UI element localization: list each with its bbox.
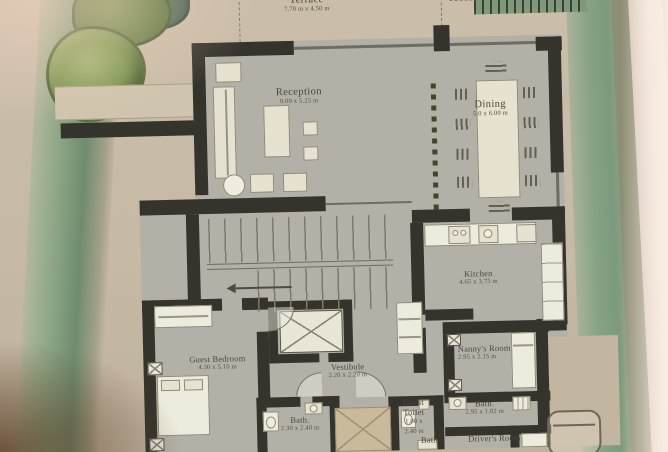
nightstand-icon xyxy=(147,362,162,375)
garden-step-strip xyxy=(55,83,196,120)
room-label-reception: Reception 9.00 x 5.25 m xyxy=(276,86,323,105)
pillow xyxy=(161,380,180,391)
shower-tray xyxy=(512,396,530,410)
wall xyxy=(61,120,196,138)
cooktop xyxy=(448,226,470,245)
kitchen-side-counter xyxy=(541,242,565,321)
pillow xyxy=(184,379,203,390)
nightstand-icon xyxy=(149,438,164,451)
side-table xyxy=(215,62,241,83)
room-label-terrace: Terrace 7.70 m x 4.50 m xyxy=(284,0,330,13)
stairs-arrow-head-icon xyxy=(227,283,236,293)
stairs-lower-flight xyxy=(257,266,394,311)
room-label-small-bath: Bath xyxy=(421,434,438,444)
entry-mat-icon xyxy=(335,407,392,452)
fridge xyxy=(516,224,536,242)
armchair xyxy=(283,173,307,193)
dining-chair xyxy=(485,62,506,73)
nanny-bed xyxy=(511,332,536,389)
terrace-dashed-edge-left xyxy=(239,2,241,42)
room-label-guest-bath: Bath. 2.30 x 2.40 m xyxy=(280,414,319,432)
dining-chair xyxy=(523,87,538,98)
nightstand-icon xyxy=(448,379,462,391)
room-label-guest-toilet: Guest Toilet 1.00 x 2.40 m xyxy=(403,397,425,437)
room-label-nanny-bath: Bath. 2.95 x 1.02 m xyxy=(465,398,504,416)
wall xyxy=(433,25,450,51)
dining-chair xyxy=(456,119,471,130)
dining-chair xyxy=(457,177,472,188)
accent-table xyxy=(303,146,318,160)
room-label-dining: Dining 5.0 x 6.00 m xyxy=(473,99,509,118)
hall-cabinet xyxy=(396,302,423,355)
wall xyxy=(512,206,565,220)
elevator-wall xyxy=(269,353,319,363)
dining-chair xyxy=(455,89,470,100)
armchair xyxy=(250,173,274,193)
room-label-drivers-room: Driver's Room xyxy=(468,432,521,443)
floor-plan-drawing: Terrace 7.70 m x 4.50 m Reception 9.00 x… xyxy=(0,0,668,452)
drivers-bed xyxy=(521,433,547,448)
room-label-nannys-room: Nanny's Room 2.95 x 2.15 m xyxy=(458,343,511,361)
wall xyxy=(425,309,473,321)
wall xyxy=(192,41,294,57)
terrace-dashed-edge-top xyxy=(450,0,562,1)
room-label-vestibule: Vestibule 2.20 x 2.20 m xyxy=(328,361,367,379)
dining-table xyxy=(476,79,521,198)
stairs-upper-flight xyxy=(208,215,391,263)
floor-plan-photo: Terrace 7.70 m x 4.50 m Reception 9.00 x… xyxy=(0,0,668,452)
car-outline-icon xyxy=(547,409,602,452)
coffee-table xyxy=(263,105,290,158)
wall xyxy=(548,36,564,172)
accent-table xyxy=(303,121,318,135)
wall xyxy=(412,209,470,223)
dining-chair xyxy=(524,147,539,158)
dining-chair xyxy=(525,175,540,186)
dining-chair xyxy=(489,202,510,213)
dining-chair xyxy=(456,149,471,160)
room-label-kitchen: Kitchen 4.65 x 3.75 m xyxy=(459,268,498,286)
dining-chair xyxy=(524,117,539,128)
terrace-dashed-edge-right xyxy=(441,0,443,26)
room-label-guest-bedroom: Guest Bedroom 4.30 x 5.10 m xyxy=(189,353,246,371)
